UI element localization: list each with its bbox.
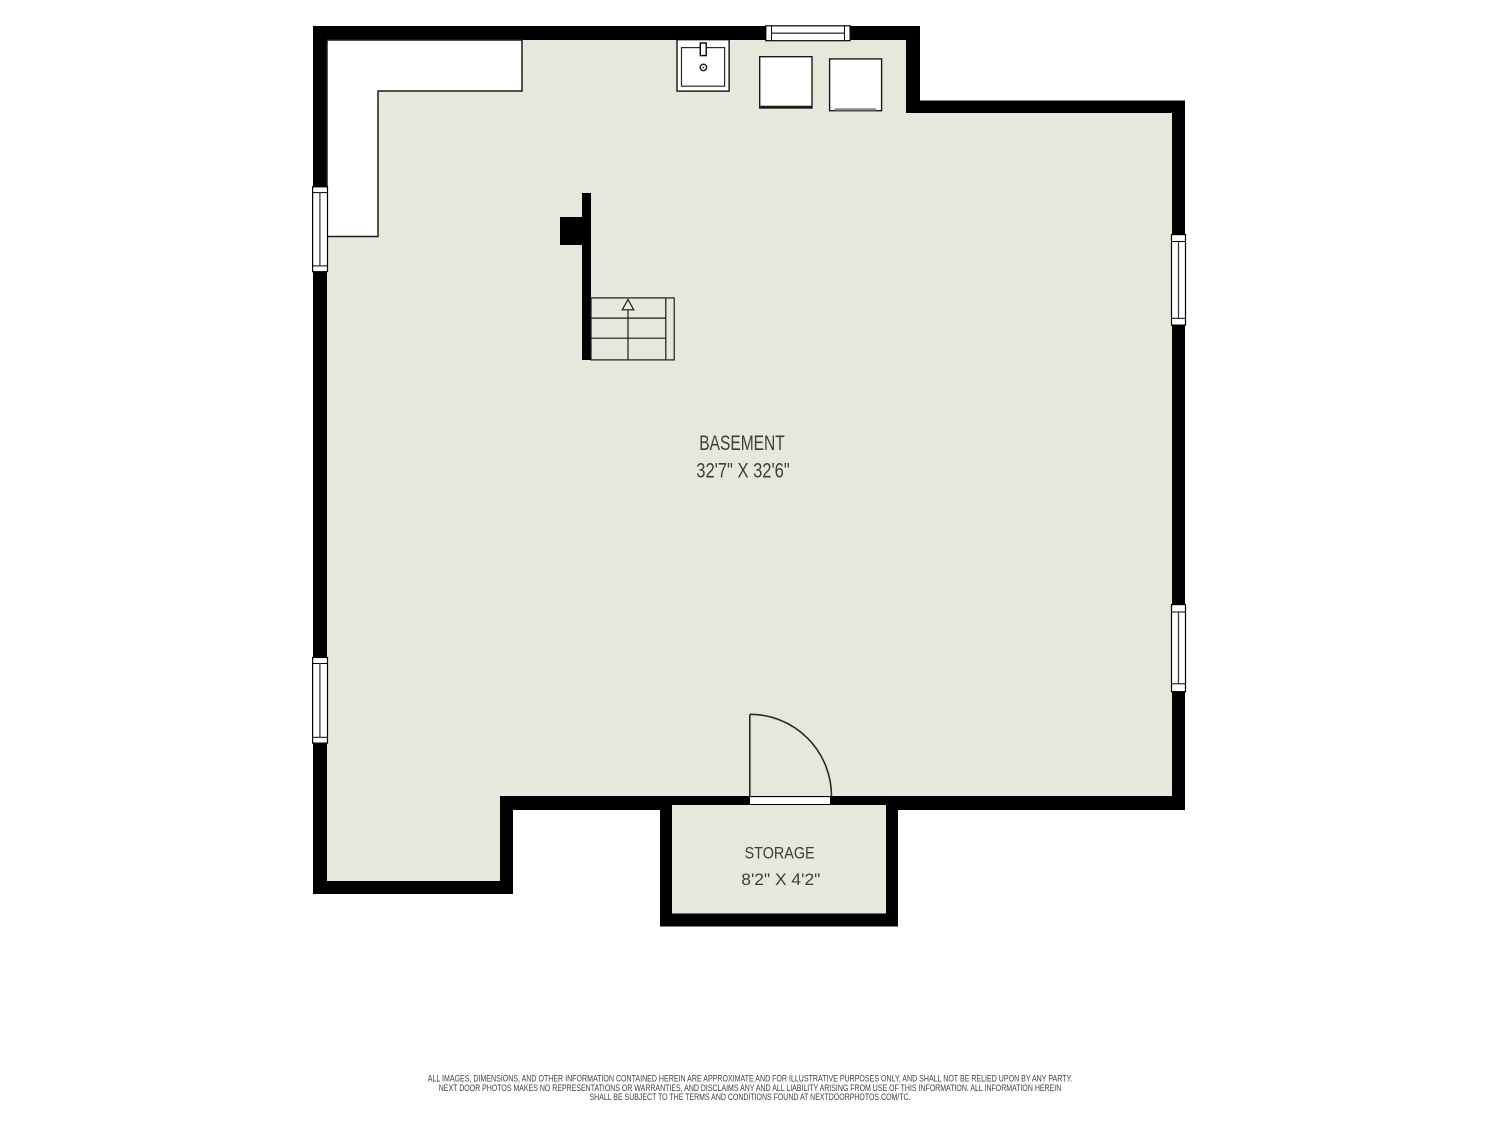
svg-text:STORAGE: STORAGE	[745, 844, 815, 863]
svg-text:BASEMENT: BASEMENT	[699, 431, 785, 455]
svg-text:SHALL BE SUBJECT TO THE TERMS: SHALL BE SUBJECT TO THE TERMS AND CONDIT…	[590, 1092, 911, 1102]
svg-text:32'7" X 32'6": 32'7" X 32'6"	[696, 458, 790, 482]
svg-text:8'2" X 4'2": 8'2" X 4'2"	[741, 870, 820, 889]
